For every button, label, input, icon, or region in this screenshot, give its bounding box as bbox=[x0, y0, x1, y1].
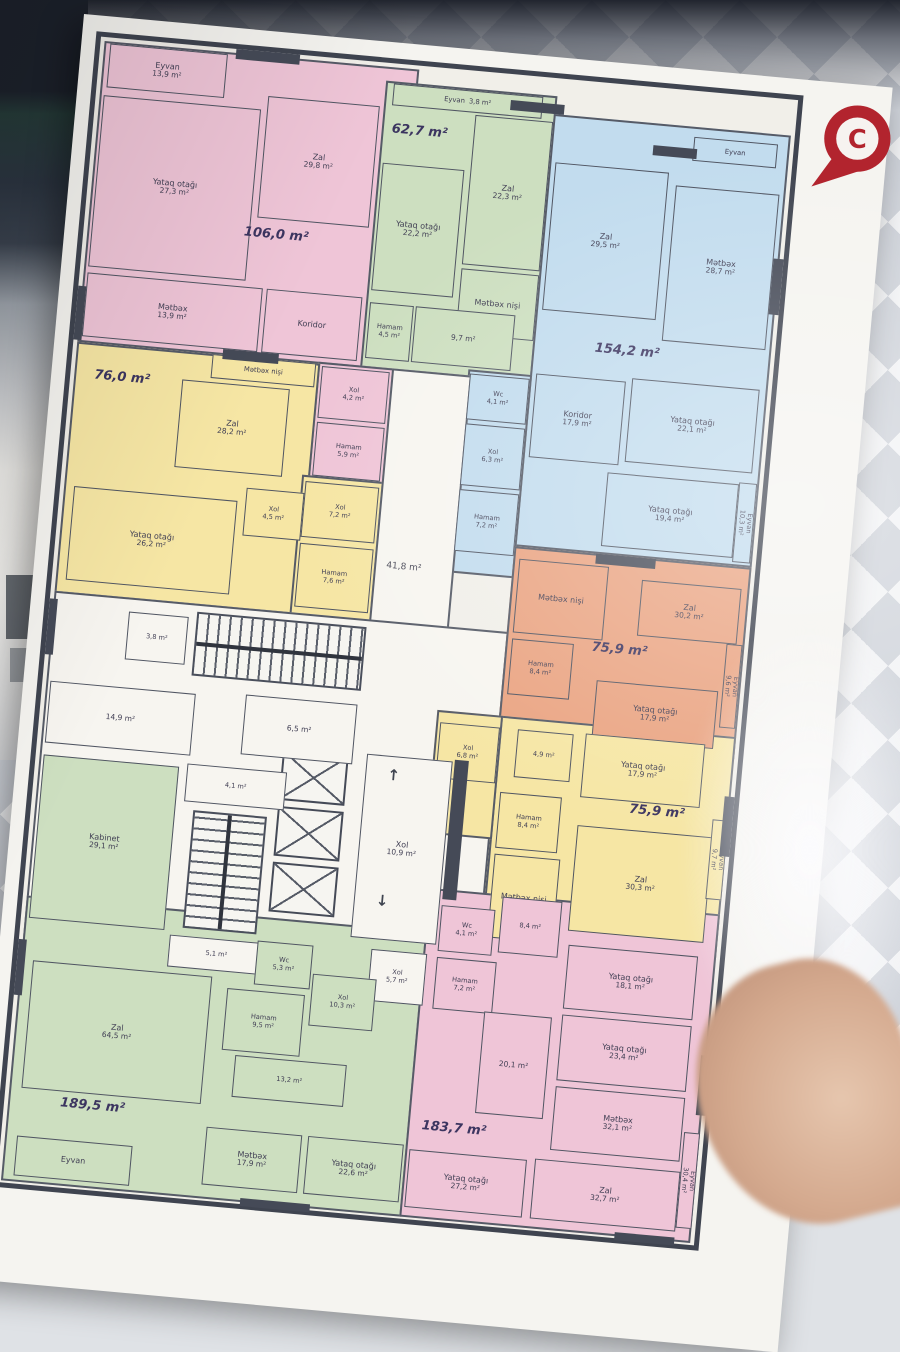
room-name: Eyvan bbox=[60, 1155, 85, 1167]
room: Xol4,2 m² bbox=[317, 366, 389, 424]
room-area: 4,9 m² bbox=[533, 751, 555, 761]
room: Xol10,3 m² bbox=[308, 974, 376, 1032]
stairs bbox=[183, 810, 267, 934]
room-area: 4,1 m² bbox=[486, 398, 508, 408]
photo-of-floorplan: { "scene": { "marker_letter": "C" }, "pa… bbox=[0, 0, 900, 1200]
room: Xol10,9 m² bbox=[350, 754, 452, 945]
room: Yataq otağı22,2 m² bbox=[371, 163, 464, 298]
room-name: Eyvan bbox=[444, 95, 465, 105]
room-area: 13,9 m² bbox=[152, 70, 182, 81]
room-area: 5,1 m² bbox=[205, 950, 227, 960]
room-area: 22,2 m² bbox=[402, 229, 432, 240]
room: Wc5,3 m² bbox=[254, 941, 314, 990]
room-area: 6,5 m² bbox=[286, 724, 311, 735]
room-area: 9,7 m² bbox=[450, 333, 475, 344]
room: Wc4,1 m² bbox=[438, 905, 496, 956]
location-pin-marker: C bbox=[804, 98, 896, 194]
room: Mətbəx17,9 m² bbox=[201, 1127, 302, 1193]
room: 20,1 m² bbox=[475, 1011, 552, 1119]
room: Kabinet29,1 m² bbox=[29, 754, 179, 930]
room-area: 29,1 m² bbox=[89, 841, 119, 852]
room-area: 4,2 m² bbox=[342, 394, 364, 404]
floorplan: Eyvan13,9 m²Yataq otağı27,3 m²Zal29,8 m²… bbox=[0, 31, 804, 1251]
elevator bbox=[268, 862, 338, 918]
room: Yataq otağı17,9 m² bbox=[580, 733, 705, 808]
room-area: 5,7 m² bbox=[385, 976, 407, 986]
room-area: 7,6 m² bbox=[322, 577, 344, 587]
room: Hamam8,4 m² bbox=[495, 792, 562, 853]
room-area: 22,1 m² bbox=[677, 425, 707, 436]
room-area: 17,9 m² bbox=[236, 1159, 266, 1170]
arrow-down-icon: ↓ bbox=[375, 891, 389, 910]
room-area: 29,8 m² bbox=[303, 161, 333, 172]
room-area: 9,7 m² bbox=[708, 848, 718, 870]
room: 3,8 m² bbox=[125, 612, 189, 665]
room-area: 30,4 m² bbox=[679, 1167, 689, 1193]
room: Yataq otağı22,6 m² bbox=[303, 1136, 404, 1202]
room-area: 10,3 m² bbox=[329, 1001, 355, 1011]
room: 8,4 m² bbox=[498, 897, 563, 958]
room: Yataq otağı18,1 m² bbox=[563, 945, 698, 1021]
room-area: 9,5 m² bbox=[252, 1021, 274, 1031]
room: Zal30,3 m² bbox=[568, 825, 713, 943]
room: Yataq otağı22,1 m² bbox=[625, 378, 760, 473]
room-area: 30,3 m² bbox=[625, 883, 655, 894]
room: Yataq otağı19,4 m² bbox=[601, 472, 739, 558]
room-area: 29,5 m² bbox=[590, 240, 620, 251]
room-area: 13,9 m² bbox=[157, 311, 187, 322]
room-area: 28,2 m² bbox=[217, 427, 247, 438]
room-area: 14,9 m² bbox=[105, 712, 135, 723]
room: Zal22,3 m² bbox=[462, 115, 553, 271]
room: Hamam4,5 m² bbox=[365, 302, 414, 362]
room-area: 64,5 m² bbox=[101, 1031, 131, 1042]
room: Koridor17,9 m² bbox=[529, 373, 626, 465]
room: Zal30,2 m² bbox=[637, 580, 742, 645]
room-name: Eyvan bbox=[724, 148, 745, 158]
room-area: 8,4 m² bbox=[517, 822, 539, 832]
room: 4,9 m² bbox=[514, 729, 574, 782]
room-area: 22,6 m² bbox=[338, 1168, 368, 1179]
room-area: 20,1 m² bbox=[498, 1060, 528, 1071]
room-area: 3,8 m² bbox=[469, 97, 492, 107]
room: Xol4,5 m² bbox=[242, 488, 304, 541]
room-area: 4,1 m² bbox=[224, 782, 246, 792]
room-area: 19,4 m² bbox=[655, 514, 685, 525]
room-area: 22,3 m² bbox=[492, 192, 522, 203]
room: Mətbəx nişi bbox=[513, 559, 609, 641]
room: Hamam9,5 m² bbox=[222, 988, 305, 1057]
room-area: 26,2 m² bbox=[136, 539, 166, 550]
room: Hamam7,2 m² bbox=[454, 489, 519, 556]
room: Mətbəx32,1 m² bbox=[550, 1086, 685, 1162]
room-area: 3,8 m² bbox=[146, 633, 168, 643]
room: Hamam7,2 m² bbox=[432, 957, 496, 1014]
room: Koridor bbox=[261, 289, 362, 361]
room: Yataq otağı26,2 m² bbox=[66, 486, 238, 594]
room-area: 6,3 m² bbox=[481, 456, 503, 466]
room-area: 17,9 m² bbox=[639, 714, 669, 725]
marker-letter: C bbox=[848, 125, 867, 155]
room-name: Mətbəx nişi bbox=[474, 298, 521, 312]
room-name: Koridor bbox=[297, 319, 326, 331]
room-area: 4,1 m² bbox=[455, 929, 477, 939]
room-area: 18,1 m² bbox=[615, 981, 645, 992]
room-area: 8,4 m² bbox=[519, 922, 541, 932]
room-area: 17,9 m² bbox=[562, 418, 592, 429]
room: Hamam7,6 m² bbox=[294, 543, 373, 613]
room: 6,5 m² bbox=[241, 694, 358, 764]
room-name: Mətbəx nişi bbox=[244, 365, 284, 377]
room-area: 27,3 m² bbox=[159, 187, 189, 198]
room: Xol6,3 m² bbox=[460, 423, 525, 490]
room-area: 32,1 m² bbox=[602, 1123, 632, 1134]
room-name: Mətbəx nişi bbox=[538, 593, 585, 607]
room-area: 5,9 m² bbox=[337, 451, 359, 461]
room-area: 4,5 m² bbox=[378, 331, 400, 341]
arrow-up-icon: ↑ bbox=[386, 766, 400, 785]
room-area: 30,2 m² bbox=[674, 611, 704, 622]
room: Yataq otağı27,2 m² bbox=[404, 1149, 527, 1217]
room-area: 23,4 m² bbox=[609, 1052, 639, 1063]
room-area: 7,2 m² bbox=[453, 985, 475, 995]
room-area: 5,3 m² bbox=[272, 964, 294, 974]
room: Wc4,1 m² bbox=[466, 373, 530, 424]
room: Zal29,8 m² bbox=[257, 96, 380, 228]
room-area: 10,9 m² bbox=[386, 848, 416, 859]
room: Zal29,5 m² bbox=[542, 162, 669, 320]
room: 14,9 m² bbox=[45, 681, 196, 756]
elevator bbox=[274, 806, 344, 862]
room: 9,7 m² bbox=[411, 306, 516, 371]
room-area: 13,2 m² bbox=[276, 1076, 302, 1086]
room-area: 7,2 m² bbox=[475, 522, 497, 532]
room-area: 9,6 m² bbox=[722, 675, 732, 697]
room: Yataq otağı27,3 m² bbox=[88, 95, 261, 281]
room-area: 4,5 m² bbox=[262, 513, 284, 523]
room-area: 10,3 m² bbox=[736, 509, 746, 535]
room: Zal64,5 m² bbox=[21, 960, 212, 1104]
room: Hamam5,9 m² bbox=[312, 422, 385, 482]
room: Yataq otağı23,4 m² bbox=[556, 1014, 691, 1092]
room-area: 17,9 m² bbox=[627, 770, 657, 781]
room: Xol5,7 m² bbox=[367, 949, 427, 1006]
room-area: 8,4 m² bbox=[529, 668, 551, 678]
room-area: 28,7 m² bbox=[705, 267, 735, 278]
room: Zal28,2 m² bbox=[174, 379, 290, 476]
room-area: 27,2 m² bbox=[450, 1182, 480, 1193]
pin-icon: C bbox=[804, 98, 896, 194]
room-area: 7,2 m² bbox=[328, 511, 350, 521]
room: Mətbəx28,7 m² bbox=[662, 185, 780, 350]
room: Xol7,2 m² bbox=[301, 481, 380, 543]
room: Hamam8,4 m² bbox=[507, 638, 574, 699]
